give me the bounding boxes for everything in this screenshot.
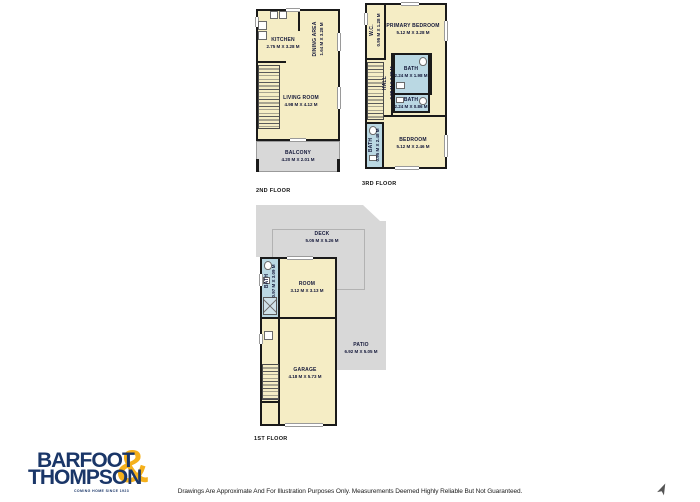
stairs-icon <box>262 364 279 400</box>
kitchen-dining-wall <box>298 9 300 31</box>
wardrobe-wall <box>430 53 432 95</box>
room-label-bath-small: BATH 2.24 M X 0.86 M <box>394 97 427 109</box>
laundry-tub-icon <box>264 331 273 340</box>
room-label-bath-ensuite: BATH 0.95 M X 2.48 M <box>368 128 380 161</box>
kitchen-appliance <box>270 11 278 19</box>
window <box>395 166 419 170</box>
window <box>444 135 448 157</box>
bedroom-wall <box>384 115 447 117</box>
kitchen-sink <box>258 21 267 30</box>
room-label-bath: BATH 0.97 M X 3.09 M <box>264 264 276 297</box>
deck-door <box>287 256 313 260</box>
floor-plan-second: KITCHEN 2.75 M X 3.28 M DINING AREA 1.64… <box>256 9 340 173</box>
room-label-bedroom: BEDROOM 5.12 M X 2.46 M <box>396 137 429 149</box>
balcony-wall <box>337 159 340 172</box>
stairs-icon <box>258 65 280 129</box>
room-label-hall: HALL 0.88 M X 3.08 M <box>382 66 394 99</box>
room-label-kitchen: KITCHEN 2.75 M X 3.28 M <box>266 37 299 49</box>
disclaimer-text: Drawings Are Approximate And For Illustr… <box>0 488 700 495</box>
wc-wall <box>365 58 386 60</box>
window <box>286 8 300 12</box>
shower-icon <box>263 297 277 315</box>
logo-word-thompson: THOMPSON <box>28 467 141 488</box>
window <box>444 21 448 41</box>
room-label-wc: W.C. 0.95 M X 1.28 M <box>369 13 381 46</box>
window <box>337 87 341 109</box>
closet-wall <box>262 401 279 403</box>
garage-door <box>285 423 323 427</box>
bath-wall <box>278 259 280 317</box>
room-garage-wall <box>262 317 335 319</box>
room-label-room: ROOM 3.12 M X 3.13 M <box>290 281 323 293</box>
floorplan-page: { "page": { "disclaimer": "Drawings Are … <box>0 0 700 500</box>
north-arrow-icon <box>655 482 670 497</box>
room-label-dining: DINING AREA 1.64 M X 3.28 M <box>312 21 324 56</box>
sink-icon <box>396 82 405 89</box>
room-label-bath-main: BATH 2.24 M X 1.98 M <box>394 66 427 78</box>
window <box>337 33 341 51</box>
window <box>259 334 263 344</box>
room-label-deck: DECK 5.05 M X 5.26 M <box>305 231 338 243</box>
floor-label-first: 1ST FLOOR <box>254 436 288 442</box>
balcony-wall <box>256 159 259 172</box>
window <box>401 2 419 6</box>
room-label-primary-bedroom: PRIMARY BEDROOM 5.12 M X 3.28 M <box>386 23 439 35</box>
toilet-icon <box>419 57 427 66</box>
kitchen-wall <box>258 61 286 63</box>
floor-label-third: 3RD FLOOR <box>362 181 396 187</box>
room-label-balcony: BALCONY 4.20 M X 2.01 M <box>281 150 314 162</box>
room-label-living: LIVING ROOM 4.98 M X 4.12 M <box>283 95 319 107</box>
floor-plan-third: W.C. 0.95 M X 1.28 M PRIMARY BEDROOM 5.1… <box>365 3 447 189</box>
window <box>364 13 368 25</box>
balcony-door <box>290 138 306 142</box>
room-label-patio: PATIO 6.92 M X 5.05 M <box>344 342 377 354</box>
kitchen-appliance <box>279 11 287 19</box>
floor-label-second: 2ND FLOOR <box>256 188 290 194</box>
window <box>259 274 263 286</box>
floor-plan-first: DECK 5.05 M X 5.26 M BATH 0.97 M X 3.09 … <box>253 204 388 444</box>
room-label-garage: GARAGE 4.18 M X 5.73 M <box>288 367 321 379</box>
